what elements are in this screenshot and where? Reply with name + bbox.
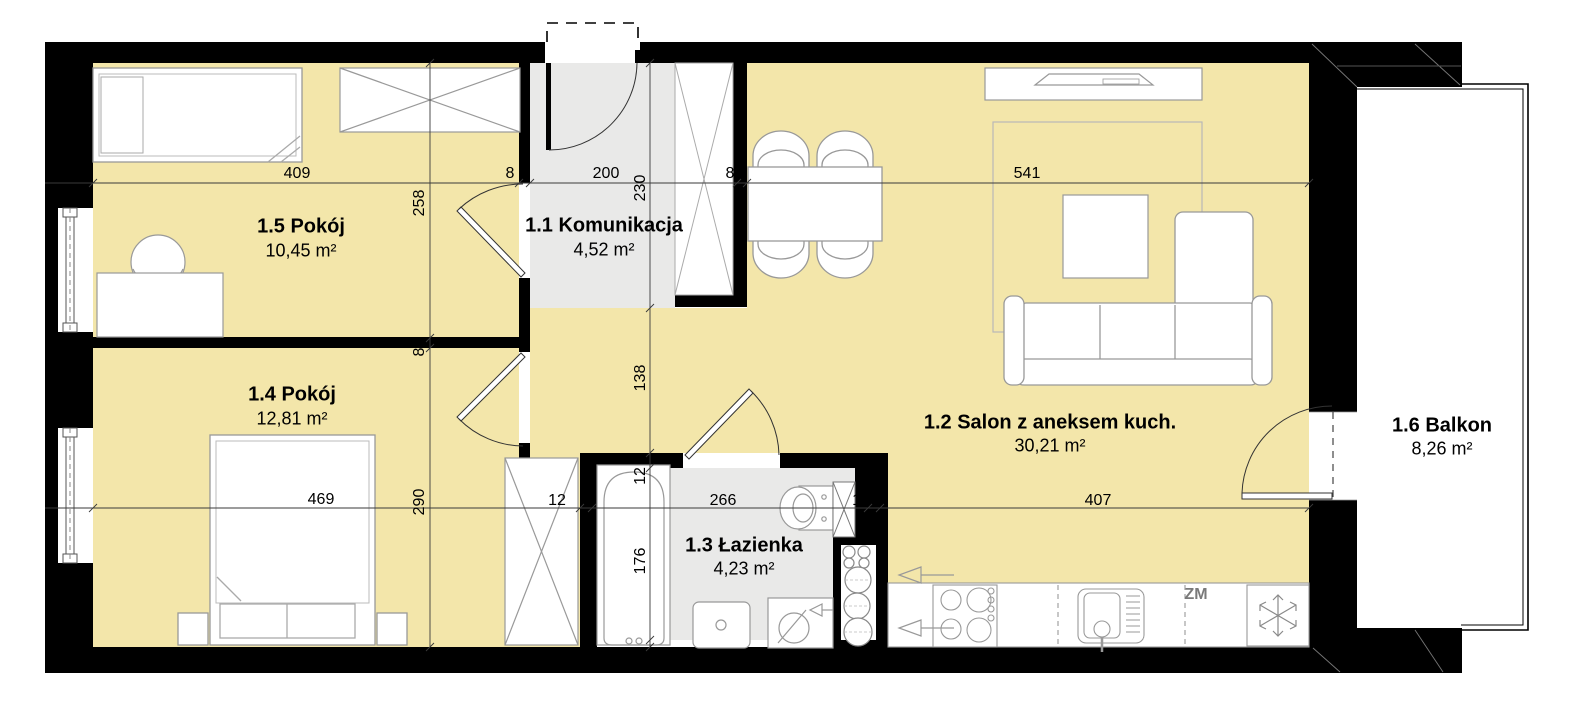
kitchen-sink [1078, 589, 1144, 652]
dim-230: 230 [632, 175, 650, 202]
dim-12-right: 12 [852, 492, 870, 510]
room-label-1-3: 1.3 Łazienka [685, 535, 803, 558]
floor-plan: 1.5 Pokój 10,45 m² 1.1 Komunikacja 4,52 … [0, 0, 1570, 710]
room-area-1-1: 4,52 m² [573, 240, 634, 261]
balcony-door [1242, 406, 1357, 500]
dim-200: 200 [593, 165, 620, 183]
wardrobe-1-4 [505, 458, 578, 645]
dim-8-vert: 8 [411, 348, 429, 357]
dim-12-left: 12 [548, 492, 566, 510]
dishwasher-label: ZM [1184, 586, 1207, 604]
stove [933, 585, 997, 647]
dim-541: 541 [1014, 165, 1041, 183]
window-symbol-2 [63, 428, 77, 563]
balcony-outline [1357, 84, 1528, 630]
shaft-pipes [843, 546, 872, 646]
plan-symbols [0, 0, 1570, 710]
tv-cabinet [985, 68, 1202, 100]
dim-409: 409 [284, 165, 311, 183]
single-bed [93, 68, 302, 162]
vent-arrow-upper [899, 567, 954, 583]
dim-12-bath: 12 [632, 467, 650, 485]
room-label-1-2: 1.2 Salon z aneksem kuch. [924, 412, 1176, 435]
room-area-1-5: 10,45 m² [265, 241, 336, 262]
dim-290: 290 [411, 489, 429, 516]
dining-table [748, 167, 882, 241]
dim-8-right: 8 [726, 165, 735, 183]
desk [97, 273, 223, 337]
room-area-1-2: 30,21 m² [1014, 436, 1085, 457]
room-area-1-3: 4,23 m² [713, 559, 774, 580]
dim-258: 258 [411, 190, 429, 217]
door-bathroom [685, 389, 779, 459]
entrance-door [546, 23, 638, 150]
wall-hatches [1312, 44, 1461, 672]
dim-138: 138 [632, 365, 650, 392]
room-label-1-6: 1.6 Balkon [1392, 415, 1492, 438]
room-label-1-4: 1.4 Pokój [248, 384, 336, 407]
door-1-5 [457, 184, 525, 277]
room-area-1-6: 8,26 m² [1411, 439, 1472, 460]
coffee-table [1063, 195, 1148, 278]
double-bed [178, 435, 407, 645]
washbasin [693, 602, 750, 648]
washing-machine [768, 598, 833, 648]
dim-266: 266 [710, 492, 737, 510]
dim-8-left: 8 [506, 165, 515, 183]
window-symbol-1 [63, 208, 77, 332]
door-1-4 [457, 353, 525, 446]
room-label-1-1: 1.1 Komunikacja [525, 215, 683, 238]
room-label-1-5: 1.5 Pokój [257, 216, 345, 239]
dim-176: 176 [632, 548, 650, 575]
dim-407: 407 [1085, 492, 1112, 510]
room-area-1-4: 12,81 m² [256, 409, 327, 430]
dim-469: 469 [308, 491, 335, 509]
wardrobe-hall [675, 63, 733, 295]
